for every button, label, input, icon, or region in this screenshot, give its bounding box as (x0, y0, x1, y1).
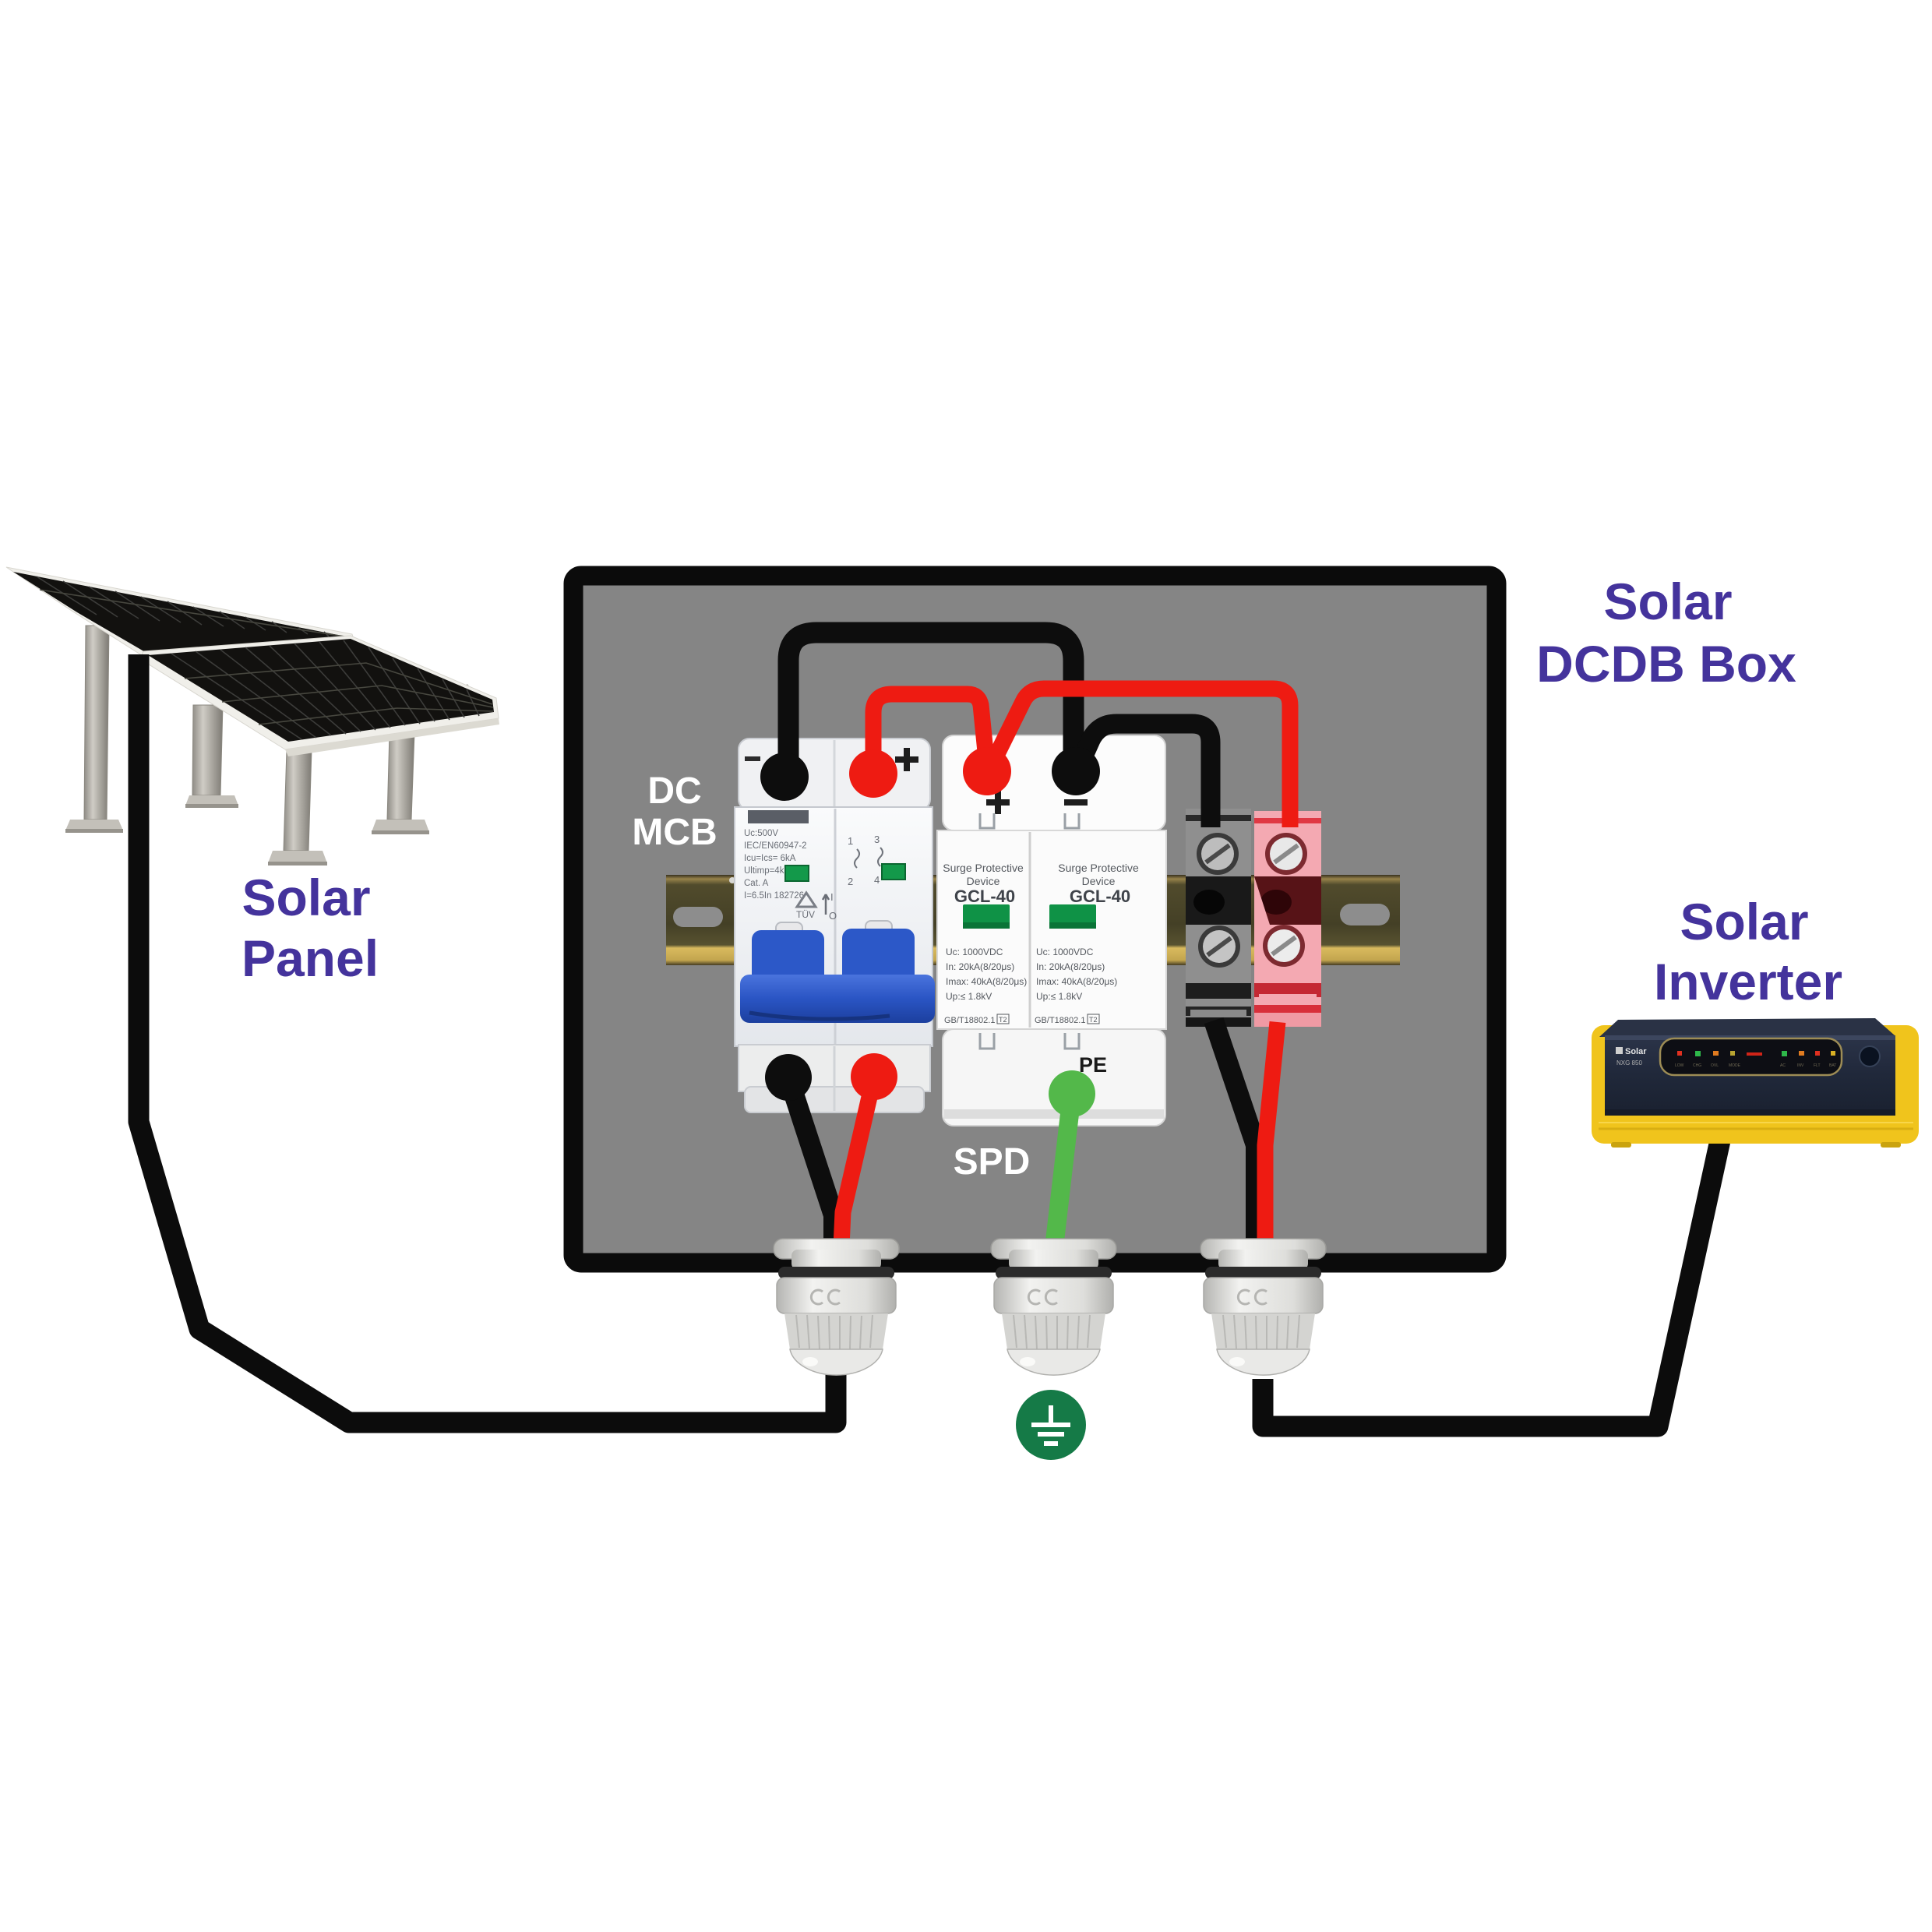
svg-text:FLT: FLT (1814, 1063, 1821, 1068)
svg-text:Cat. A: Cat. A (744, 879, 769, 888)
svg-text:I=6.5In 182726: I=6.5In 182726 (744, 891, 804, 901)
svg-text:In: 20kA(8/20μs): In: 20kA(8/20μs) (946, 961, 1014, 972)
svg-text:LOW: LOW (1675, 1063, 1684, 1068)
svg-text:SPD: SPD (954, 1141, 1031, 1183)
svg-text:Up:≤ 1.8kV: Up:≤ 1.8kV (1036, 991, 1082, 1002)
svg-text:In: 20kA(8/20μs): In: 20kA(8/20μs) (1036, 961, 1105, 972)
svg-text:GCL-40: GCL-40 (1070, 887, 1130, 906)
svg-text:Uc: 1000VDC: Uc: 1000VDC (1036, 947, 1094, 957)
svg-text:CHG: CHG (1693, 1063, 1701, 1068)
svg-text:T2: T2 (1089, 1016, 1098, 1024)
svg-text:Imax: 40kA(8/20μs): Imax: 40kA(8/20μs) (1036, 976, 1117, 987)
svg-text:BAT: BAT (1829, 1063, 1836, 1068)
svg-text:AC: AC (1780, 1063, 1786, 1068)
svg-text:NXG 850: NXG 850 (1616, 1059, 1642, 1066)
svg-text:Solar: Solar (1603, 573, 1732, 630)
svg-text:O: O (829, 910, 837, 922)
svg-text:GCL-40: GCL-40 (954, 887, 1015, 906)
svg-text:DC: DC (647, 770, 701, 812)
svg-text:Ultimp=4kV: Ultimp=4kV (744, 866, 790, 876)
svg-text:Solar: Solar (241, 869, 370, 926)
svg-text:Uc: 1000VDC: Uc: 1000VDC (946, 947, 1003, 957)
svg-text:Uc:500V: Uc:500V (744, 829, 778, 838)
svg-text:DCDB Box: DCDB Box (1536, 635, 1796, 693)
svg-text:Panel: Panel (241, 929, 379, 987)
svg-text:GB/T18802.1: GB/T18802.1 (1035, 1016, 1085, 1025)
svg-text:T2: T2 (999, 1016, 1007, 1024)
svg-text:Up:≤ 1.8kV: Up:≤ 1.8kV (946, 991, 992, 1002)
svg-text:3: 3 (874, 834, 880, 845)
svg-text:Device: Device (967, 875, 1000, 887)
svg-text:1: 1 (848, 835, 853, 847)
svg-text:Imax: 40kA(8/20μs): Imax: 40kA(8/20μs) (946, 976, 1027, 987)
svg-text:Solar: Solar (1680, 893, 1808, 950)
svg-text:I: I (830, 891, 834, 903)
svg-text:Icu=Ics= 6kA: Icu=Ics= 6kA (744, 854, 796, 863)
svg-text:TÜV: TÜV (796, 909, 815, 920)
svg-text:MODE: MODE (1729, 1063, 1741, 1068)
svg-text:2: 2 (848, 876, 853, 887)
svg-text:IEC/EN60947-2: IEC/EN60947-2 (744, 841, 807, 851)
svg-text:Device: Device (1082, 875, 1116, 887)
svg-text:Surge Protective: Surge Protective (1058, 862, 1139, 874)
svg-text:Inverter: Inverter (1654, 953, 1842, 1010)
svg-text:GB/T18802.1: GB/T18802.1 (944, 1016, 995, 1025)
svg-text:Solar: Solar (1625, 1047, 1647, 1056)
svg-text:INV: INV (1797, 1063, 1804, 1068)
svg-text:MCB: MCB (632, 812, 717, 853)
svg-text:PE: PE (1079, 1053, 1107, 1077)
svg-text:Surge Protective: Surge Protective (943, 862, 1024, 874)
svg-text:OVL: OVL (1711, 1063, 1719, 1068)
svg-text:4: 4 (874, 874, 880, 886)
